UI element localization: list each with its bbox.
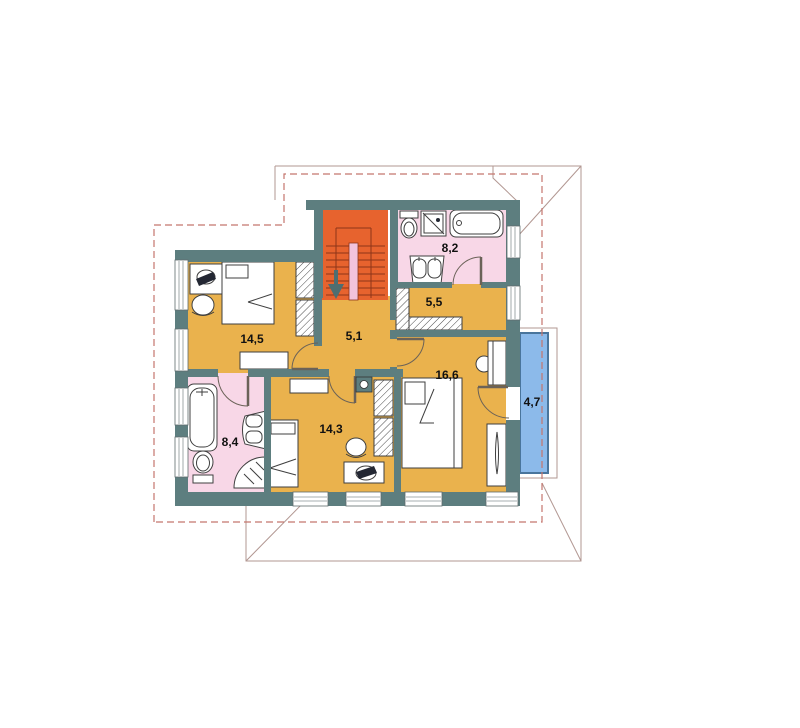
balcony-door-opening: [506, 387, 520, 420]
bed-pillow: [405, 382, 425, 404]
room-label-bathroom-bottom-left: 8,4: [222, 435, 239, 449]
room-label-bedroom-right: 16,6: [435, 368, 459, 382]
interior-wall: [390, 284, 396, 320]
room-label-closet: 5,5: [426, 295, 443, 309]
window: [175, 260, 188, 310]
room-label-hall: 5,1: [346, 329, 363, 343]
window: [405, 492, 442, 506]
exterior-wall: [306, 200, 520, 210]
room-label-balcony: 4,7: [524, 395, 541, 409]
shelf-symbol: [240, 352, 288, 369]
window: [507, 286, 520, 320]
wardrobe-symbol: [374, 380, 393, 416]
wardrobe-symbol: [396, 288, 409, 330]
interior-wall: [396, 330, 518, 337]
room-label-bathroom-top: 8,2: [442, 241, 459, 255]
chair-symbol: [346, 438, 366, 456]
interior-wall: [314, 298, 322, 346]
wardrobe-symbol: [296, 300, 314, 336]
shelf-symbol: [290, 379, 328, 393]
stair-landing-strip: [349, 243, 358, 300]
window: [175, 437, 188, 477]
wardrobe-symbol: [409, 317, 462, 330]
floor-plan: 14,5 5,1 8,2 5,5 16,6 4,7 8,4 14,3: [0, 0, 800, 728]
toilet-symbol: [193, 451, 213, 473]
wardrobe-symbol: [488, 341, 506, 385]
wardrobe-symbol: [296, 262, 314, 298]
interior-wall: [396, 282, 452, 288]
interior-wall: [390, 206, 398, 284]
interior-wall: [394, 377, 401, 492]
interior-wall: [264, 377, 271, 492]
toilet-cistern: [193, 475, 213, 483]
interior-wall: [390, 330, 397, 339]
window: [175, 329, 188, 371]
window: [175, 388, 188, 425]
exterior-wall: [314, 200, 323, 298]
window: [486, 492, 518, 506]
bed-pillow: [226, 265, 248, 278]
shower-head: [436, 218, 440, 222]
toilet-cistern: [400, 211, 418, 218]
chimney-symbol: [356, 377, 372, 392]
window: [293, 492, 328, 506]
exterior-wall: [175, 250, 318, 262]
chair-symbol: [192, 295, 214, 315]
floor-plan-page: 14,5 5,1 8,2 5,5 16,6 4,7 8,4 14,3: [0, 0, 800, 728]
room-label-bedroom-bottom: 14,3: [319, 422, 343, 436]
interior-wall: [390, 367, 397, 377]
bed-pillow: [271, 423, 295, 434]
room-label-bedroom-top-left: 14,5: [240, 332, 264, 346]
window: [507, 226, 520, 258]
toilet-symbol: [401, 218, 417, 238]
window: [346, 492, 381, 506]
wardrobe-symbol: [374, 418, 393, 456]
